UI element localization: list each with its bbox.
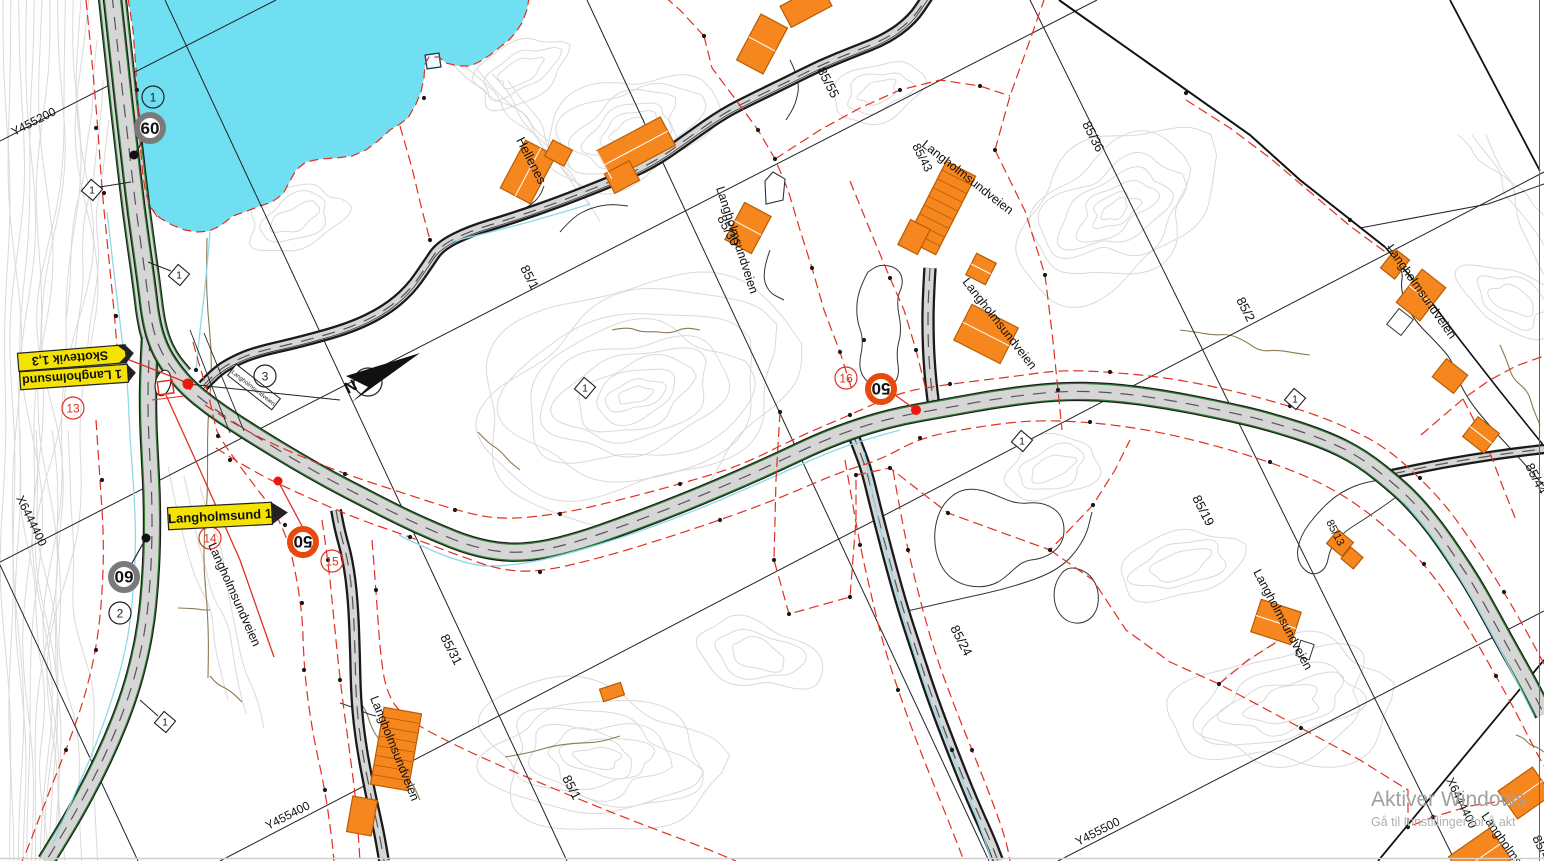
svg-text:60: 60 — [115, 567, 134, 586]
svg-text:16: 16 — [839, 372, 853, 386]
svg-text:50: 50 — [294, 532, 313, 551]
svg-text:50: 50 — [872, 379, 891, 398]
svg-text:1: 1 — [1292, 395, 1298, 406]
svg-text:Aktiver Windows: Aktiver Windows — [1371, 788, 1526, 811]
svg-text:1: 1 — [89, 186, 95, 197]
svg-text:1: 1 — [582, 384, 588, 395]
svg-text:13: 13 — [66, 402, 80, 416]
svg-text:1: 1 — [176, 271, 182, 282]
svg-text:Gå til Innstillinger for å akt: Gå til Innstillinger for å akt — [1371, 815, 1516, 829]
svg-text:3: 3 — [262, 370, 269, 384]
svg-text:2: 2 — [117, 607, 124, 621]
svg-text:1: 1 — [162, 718, 168, 729]
svg-text:15: 15 — [325, 555, 339, 569]
svg-text:1: 1 — [1019, 437, 1025, 448]
svg-text:1: 1 — [150, 91, 157, 105]
svg-text:60: 60 — [141, 119, 160, 138]
